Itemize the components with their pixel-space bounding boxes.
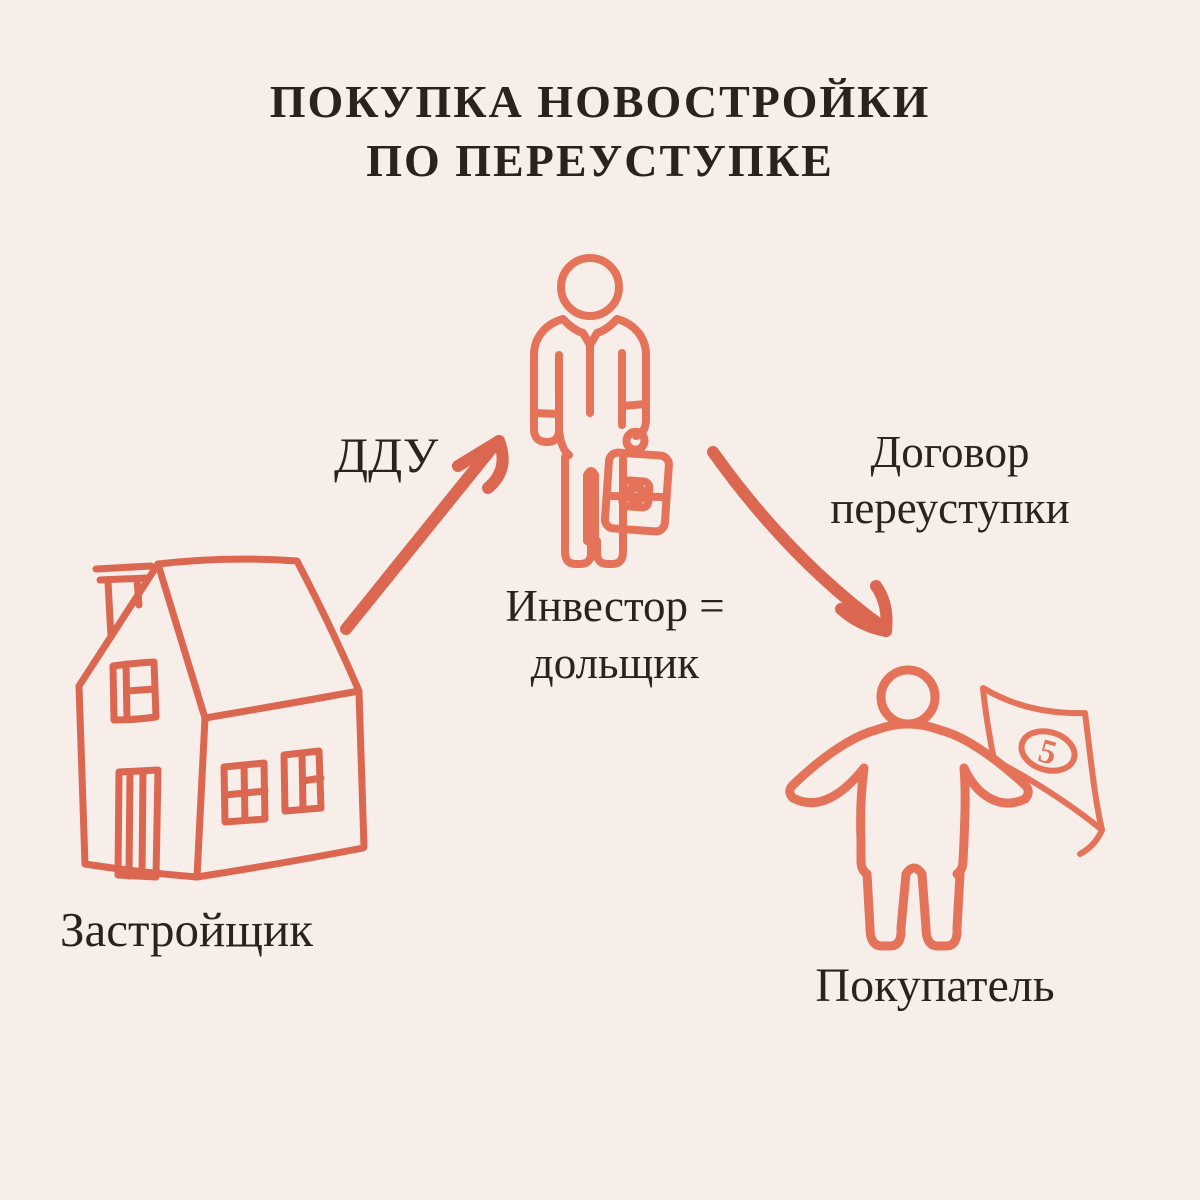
investor-head — [561, 258, 619, 316]
edge-label-assignment-line2: переуступки — [770, 480, 1130, 536]
edge-label-assignment: Договор переуступки — [770, 424, 1130, 536]
infographic-canvas: ПОКУПКА НОВОСТРОЙКИ ПО ПЕРЕУСТУПКЕ — [0, 0, 1200, 1200]
edge-label-ddu: ДДУ — [334, 426, 438, 484]
node-label-buyer: Покупатель — [775, 958, 1095, 1013]
person-money-flag-icon: 5 — [778, 656, 1118, 966]
house-icon — [66, 548, 372, 892]
page-title: ПОКУПКА НОВОСТРОЙКИ ПО ПЕРЕУСТУПКЕ — [0, 72, 1200, 190]
page-title-line1: ПОКУПКА НОВОСТРОЙКИ — [0, 72, 1200, 131]
edge-label-assignment-line1: Договор — [770, 424, 1130, 480]
buyer-strokes — [790, 670, 1102, 946]
businessman-strokes — [534, 258, 671, 564]
node-label-developer: Застройщик — [60, 901, 313, 958]
buyer-head — [881, 670, 935, 724]
node-label-investor-line2: дольщик — [430, 635, 800, 692]
node-label-investor: Инвестор = дольщик — [430, 578, 800, 692]
banknote-value: 5 — [1034, 732, 1061, 772]
house-icon-strokes — [79, 559, 364, 877]
businessman-briefcase-icon — [503, 243, 683, 573]
node-label-investor-line1: Инвестор = — [430, 578, 800, 635]
page-title-line2: ПО ПЕРЕУСТУПКЕ — [0, 131, 1200, 190]
briefcase-icon — [604, 430, 671, 532]
banknote-flag-icon — [983, 688, 1102, 854]
